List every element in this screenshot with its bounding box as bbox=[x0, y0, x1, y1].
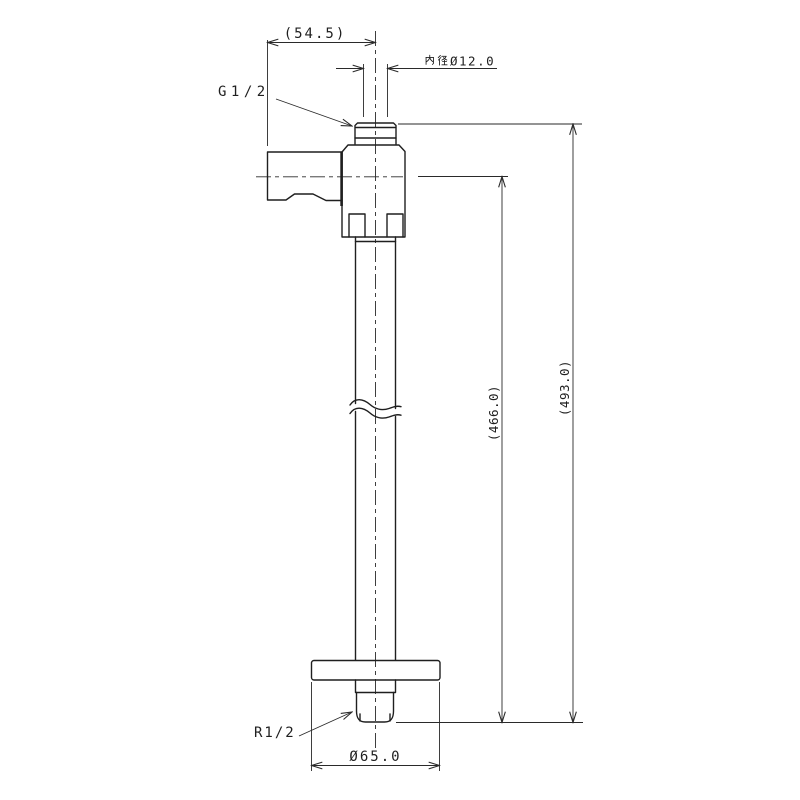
valve-body bbox=[342, 145, 405, 237]
leader-line bbox=[299, 712, 352, 736]
dimension-54-5-text: (54.5) bbox=[284, 26, 347, 42]
body-lock-notch-right bbox=[387, 214, 403, 237]
technical-drawing-page: (54.5) Ø12.0 G1/2 (493.0) bbox=[0, 0, 800, 800]
label-thread-bottom: R1/2 bbox=[254, 712, 352, 741]
leader-line bbox=[276, 99, 352, 126]
fixture-outline bbox=[268, 123, 441, 722]
technical-drawing: (54.5) Ø12.0 G1/2 (493.0) bbox=[0, 0, 800, 800]
thread-bottom-text: R1/2 bbox=[254, 725, 296, 741]
dimension-466: (466.0) bbox=[418, 177, 508, 723]
inlet-spout bbox=[268, 152, 343, 201]
dimension-493-text: (493.0) bbox=[557, 360, 572, 416]
kanji-naikei-inner-diameter bbox=[426, 55, 447, 65]
dimension-65-text: Ø65.0 bbox=[349, 749, 401, 765]
label-thread-top: G1/2 bbox=[218, 84, 352, 126]
dimension-inner-diameter: Ø12.0 bbox=[336, 54, 497, 118]
dimension-inner-diameter-text: Ø12.0 bbox=[450, 54, 495, 69]
body-lock-notch-left bbox=[349, 214, 365, 237]
dimension-466-text: (466.0) bbox=[486, 385, 501, 441]
thread-top-text: G1/2 bbox=[218, 84, 270, 100]
